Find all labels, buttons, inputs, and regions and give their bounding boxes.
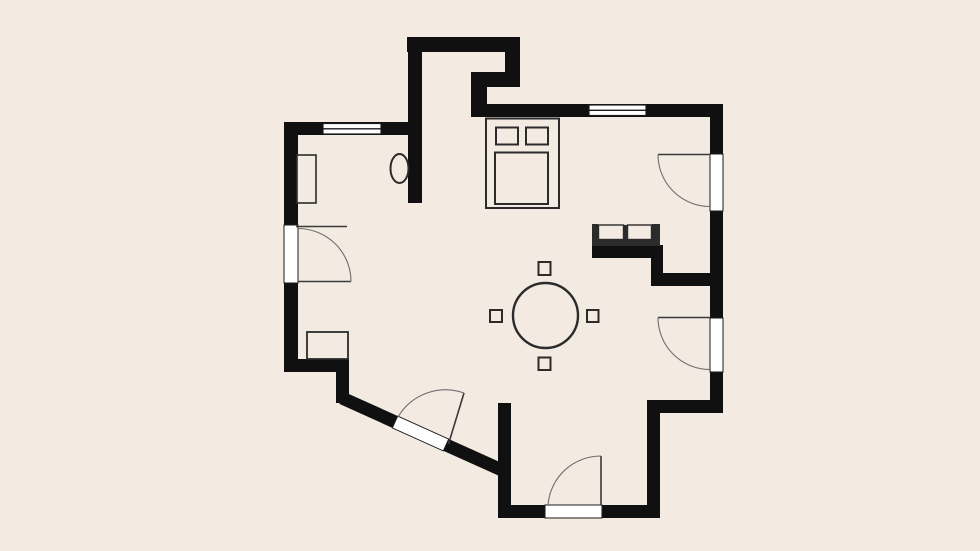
right-upper-door-arc	[658, 155, 710, 207]
bed-duvet	[495, 153, 548, 205]
door-opening-right-lower	[710, 318, 723, 372]
bed	[486, 119, 559, 209]
wall-sofa-back	[592, 245, 663, 258]
wall-left-upper	[284, 122, 298, 225]
door-opening-right-upper	[710, 154, 723, 211]
door-opening-left	[284, 225, 298, 283]
wall-entry-top	[407, 37, 520, 52]
stool-east	[587, 310, 599, 322]
round-table	[513, 283, 578, 348]
left-door-arc	[298, 229, 351, 282]
bed-pillow-left	[496, 128, 518, 145]
wardrobe	[297, 155, 316, 203]
sofa-armrest-right	[652, 224, 660, 246]
floor-plan-canvas	[0, 0, 980, 551]
wall-bottom-left	[284, 359, 349, 372]
door-opening-bottom	[545, 505, 602, 518]
door-opening-diagonal	[392, 416, 448, 451]
diagonal-door-arc	[398, 390, 464, 417]
floor-plan-drawing	[0, 0, 980, 551]
diagonal-door-leaf	[449, 393, 465, 444]
sofa-cushion-left	[599, 225, 624, 240]
stool-west	[490, 310, 502, 322]
bottom-door-arc	[548, 456, 601, 505]
wall-bottom-right-vertical	[647, 413, 660, 518]
walls	[284, 37, 723, 518]
sofa	[592, 224, 660, 246]
stool-north	[539, 262, 551, 275]
furniture	[297, 119, 660, 371]
low-cabinet	[307, 332, 348, 359]
stool-south	[539, 358, 551, 371]
dining-set	[490, 262, 599, 370]
sofa-cushion-divider	[624, 225, 628, 240]
wall-left-lower	[284, 283, 298, 372]
wall-lower-vertical	[498, 403, 511, 518]
right-lower-door-arc	[658, 318, 710, 370]
sofa-armrest-left	[592, 224, 598, 246]
sofa-cushion-right	[628, 225, 652, 240]
wall-notch-bar	[651, 273, 723, 286]
wall-entry-left-leg	[408, 37, 422, 203]
oval-basin	[391, 154, 409, 183]
bed-pillow-right	[526, 128, 548, 145]
